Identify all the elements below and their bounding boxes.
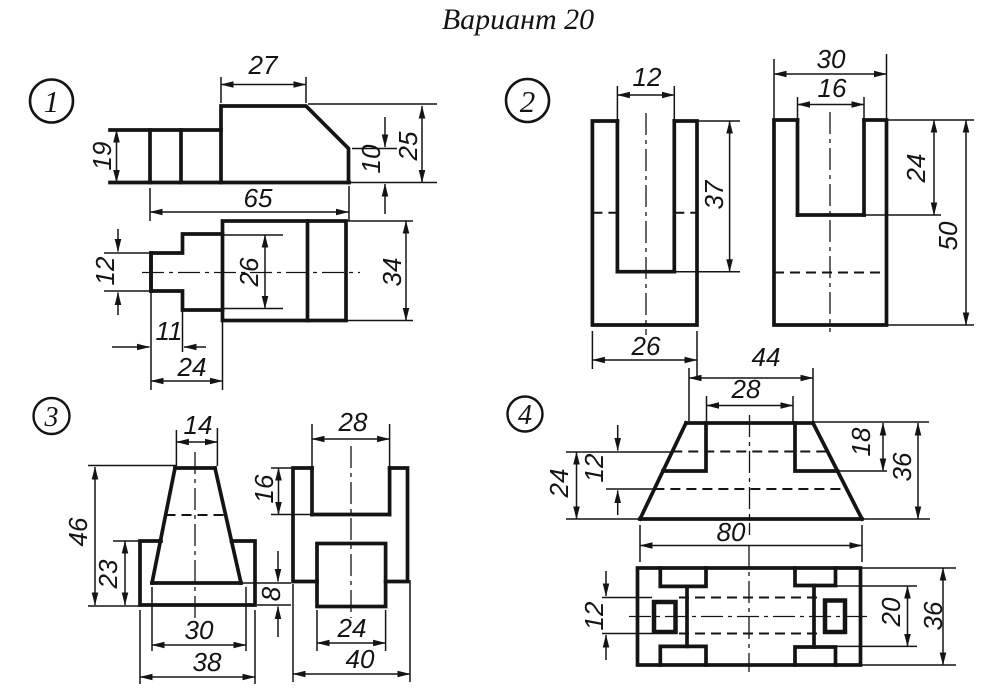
svg-text:16: 16 [249, 474, 279, 503]
svg-text:12: 12 [90, 256, 120, 285]
svg-text:36: 36 [918, 601, 948, 630]
svg-text:18: 18 [846, 427, 876, 456]
svg-text:34: 34 [377, 258, 407, 287]
svg-text:30: 30 [185, 615, 214, 645]
svg-text:38: 38 [193, 647, 222, 677]
svg-text:30: 30 [817, 44, 846, 74]
svg-text:50: 50 [933, 221, 963, 250]
svg-text:20: 20 [876, 597, 906, 627]
svg-text:Вариант 20: Вариант 20 [442, 3, 594, 36]
svg-text:80: 80 [717, 517, 746, 547]
svg-text:12: 12 [579, 601, 609, 630]
svg-text:40: 40 [346, 644, 375, 674]
svg-text:1: 1 [44, 84, 60, 119]
svg-text:8: 8 [256, 586, 286, 601]
svg-text:23: 23 [93, 559, 123, 589]
svg-text:65: 65 [244, 183, 273, 213]
svg-text:26: 26 [631, 331, 661, 361]
svg-text:12: 12 [633, 62, 662, 92]
svg-text:4: 4 [518, 400, 532, 431]
svg-text:25: 25 [393, 131, 423, 161]
svg-text:11: 11 [156, 316, 183, 346]
svg-text:14: 14 [184, 410, 213, 440]
svg-text:16: 16 [818, 73, 847, 103]
svg-text:3: 3 [44, 402, 59, 433]
svg-text:36: 36 [887, 452, 917, 481]
svg-text:28: 28 [338, 407, 368, 437]
svg-text:26: 26 [234, 257, 264, 287]
svg-text:27: 27 [248, 50, 279, 80]
svg-text:10: 10 [356, 144, 386, 173]
svg-text:37: 37 [699, 179, 729, 209]
svg-text:28: 28 [731, 374, 761, 404]
svg-text:24: 24 [177, 352, 207, 382]
svg-text:46: 46 [63, 517, 93, 546]
svg-text:24: 24 [544, 469, 574, 499]
svg-text:19: 19 [87, 142, 117, 171]
svg-text:2: 2 [520, 84, 536, 119]
svg-text:12: 12 [579, 453, 609, 482]
svg-text:44: 44 [752, 342, 781, 372]
svg-text:24: 24 [337, 613, 367, 643]
svg-text:24: 24 [901, 154, 931, 184]
